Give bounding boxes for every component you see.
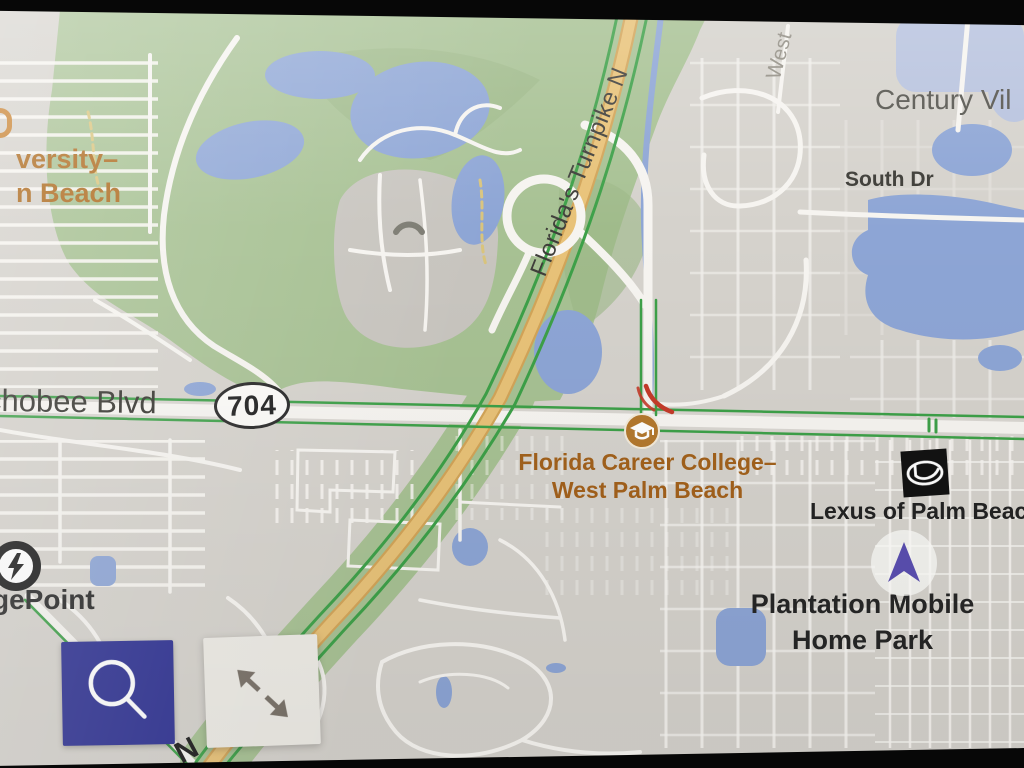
ev-charging-icon[interactable] [0, 540, 42, 592]
poi-label-university: versity– n Beach [16, 143, 121, 211]
magnifier-icon [61, 640, 175, 746]
road-label-south-dr: South Dr [845, 168, 934, 192]
infotainment-screen: Century Vil South Dr West versity– n Bea… [0, 0, 1024, 768]
plantation-line2: Home Park [745, 623, 980, 659]
route-704-number: 704 [227, 389, 278, 423]
poi-label-florida-career-college: Florida Career College– West Palm Beach [505, 449, 790, 504]
vehicle-position-puck [871, 530, 937, 596]
area-label-plantation-mobile-home-park: Plantation Mobile Home Park [745, 587, 980, 658]
road-label-okeechobee-blvd: chobee Blvd [0, 383, 157, 421]
plantation-line1: Plantation Mobile [745, 587, 980, 623]
area-label-century-village: Century Vil [875, 84, 1024, 116]
college-line2: West Palm Beach [505, 477, 790, 505]
expand-arrows-icon [203, 634, 321, 748]
poi-label-lexus-of-palm-beach: Lexus of Palm Beac [810, 498, 1024, 525]
graduation-cap-icon[interactable] [624, 413, 660, 449]
university-line1: versity– [16, 143, 121, 177]
map-canvas[interactable]: Century Vil South Dr West versity– n Bea… [0, 0, 1024, 768]
search-button[interactable] [61, 640, 175, 746]
navigation-arrow-icon [871, 530, 937, 596]
university-line2: n Beach [16, 177, 121, 211]
lexus-logo-icon[interactable] [900, 448, 949, 497]
expand-map-button[interactable] [203, 634, 321, 748]
college-line1: Florida Career College– [505, 449, 790, 477]
